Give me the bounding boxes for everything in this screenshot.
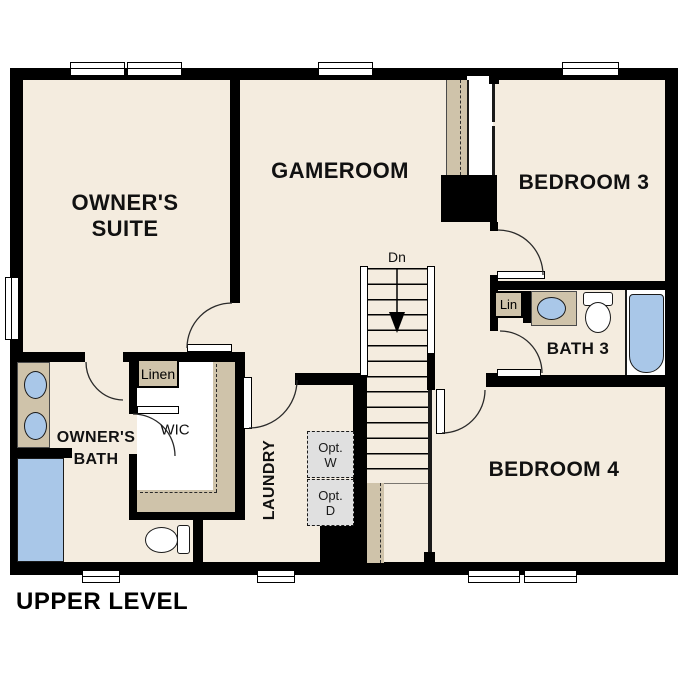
- stairwell-chase-wall: [446, 80, 467, 175]
- window-mullion: [563, 63, 618, 69]
- understair-dashed-line: [380, 483, 381, 563]
- linen-closet: Linen: [137, 359, 179, 388]
- wall-wic-left-upper: [129, 352, 137, 414]
- gameroom-label: GAMEROOM: [271, 158, 409, 184]
- window-mullion: [71, 63, 124, 69]
- stair-dn-label: Dn: [388, 249, 406, 265]
- owners-bath-shower: [17, 458, 64, 562]
- stairwell-void: [467, 76, 493, 175]
- owners-bath-label-line1: OWNER'S: [57, 429, 136, 447]
- owners-bath-toilet-bowl: [145, 527, 178, 553]
- exterior-wall-right: [665, 68, 678, 575]
- wall-wic-left-lower: [129, 454, 137, 520]
- laundry-door: [243, 377, 252, 429]
- bath3-toilet-bowl: [585, 302, 611, 333]
- laundry-label: LAUNDRY: [261, 440, 279, 520]
- opt-w-line2: W: [324, 455, 336, 470]
- stairwell-wall-stub-top: [489, 76, 499, 84]
- plan-title: UPPER LEVEL: [16, 588, 188, 616]
- wall-stair-right-lower: [428, 390, 432, 562]
- window-mullion: [319, 63, 372, 69]
- linen-label: Linen: [141, 366, 175, 382]
- stairwell-wall-block: [441, 175, 497, 222]
- bedroom4-label: BEDROOM 4: [489, 458, 620, 482]
- stairwell-thin-wall-left: [467, 80, 469, 175]
- window-owners-suite-left: [5, 277, 19, 340]
- window-bedroom3: [562, 62, 619, 76]
- bedroom3-label: BEDROOM 3: [519, 171, 650, 195]
- stair-rail-right: [427, 266, 435, 354]
- bath3-door: [497, 369, 541, 377]
- wic-shelf-dashed-line-bottom: [140, 492, 217, 493]
- owners-suite-label-line1: OWNER'S: [71, 190, 178, 216]
- wic-label: WIC: [160, 422, 189, 439]
- lin-closet: Lin: [494, 291, 523, 318]
- wall-suite-gameroom: [230, 80, 240, 303]
- stairwell-thin-wall-right-lower: [492, 126, 495, 175]
- optional-dryer-box: Opt. D: [307, 479, 354, 526]
- window-owners-suite-2: [127, 62, 182, 76]
- window-mullion: [469, 571, 519, 577]
- wall-laundry-bath-divider: [193, 512, 203, 574]
- opt-w-line1: Opt.: [318, 440, 343, 455]
- floor-plan-upper-level: Linen Opt. W Opt. D Lin: [0, 0, 687, 687]
- opt-d-line1: Opt.: [318, 488, 343, 503]
- window-owners-suite-1: [70, 62, 125, 76]
- wall-owners-bath-top-left: [10, 352, 85, 362]
- bedroom3-door: [497, 271, 545, 279]
- wall-stair-left: [353, 373, 367, 528]
- window-bedroom4-1: [468, 570, 520, 583]
- owners-suite-label-line2: SUITE: [92, 216, 159, 242]
- stair-rail-left: [360, 266, 368, 376]
- owners-bath-label-line2: BATH: [74, 451, 119, 469]
- window-mullion: [6, 278, 12, 339]
- linen-shelf-line: [137, 406, 179, 414]
- window-owners-bath: [82, 570, 120, 583]
- window-gameroom: [318, 62, 373, 76]
- wic-shelf-dashed-line-right: [216, 364, 217, 492]
- stair-treads: [367, 268, 428, 484]
- window-bedroom4-2: [524, 570, 577, 583]
- understair-chase: [367, 483, 384, 563]
- wall-laundry-chase: [320, 525, 368, 571]
- wall-lin-right: [523, 291, 531, 323]
- bath3-sink: [537, 297, 566, 320]
- bath3-label: BATH 3: [547, 339, 610, 359]
- bath3-tub-partition: [625, 290, 627, 375]
- window-mullion: [128, 63, 181, 69]
- wall-stair-right-end: [424, 552, 435, 574]
- wall-bath3-top: [492, 281, 666, 290]
- opt-d-line2: D: [326, 503, 335, 518]
- optional-washer-box: Opt. W: [307, 431, 354, 478]
- window-mullion: [258, 571, 294, 577]
- owners-bath-toilet-tank: [177, 525, 190, 554]
- wall-shower-partition: [10, 448, 72, 458]
- owners-bath-sink-1: [24, 371, 47, 399]
- wall-bedroom3-jamb-top: [490, 222, 498, 231]
- owners-suite-door: [187, 344, 232, 352]
- owners-bath-sink-2: [24, 412, 47, 440]
- window-mullion: [525, 571, 576, 577]
- stairwell-dashed-line: [460, 80, 461, 175]
- wall-stair-right-upper: [427, 353, 435, 390]
- lin-label: Lin: [500, 297, 517, 312]
- bedroom4-door: [436, 389, 445, 434]
- bath3-tub: [629, 294, 664, 373]
- window-laundry: [257, 570, 295, 583]
- wic-shelving-bottom: [137, 490, 235, 512]
- wall-wic-bottom: [129, 512, 245, 520]
- window-mullion: [83, 571, 119, 577]
